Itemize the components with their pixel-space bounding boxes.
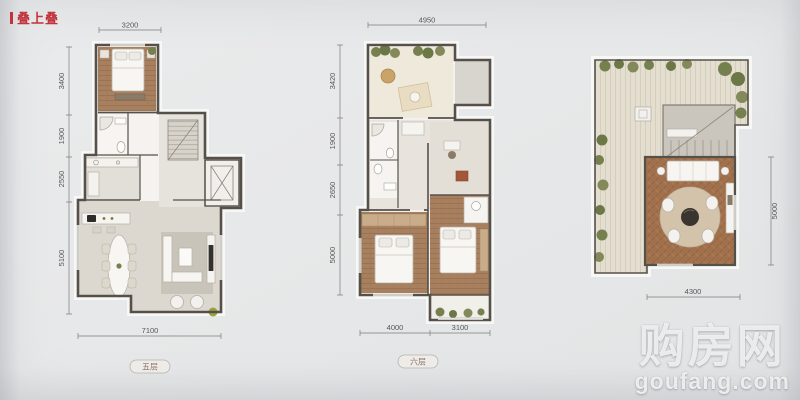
floor-plan-level5: 3200 3400 1900 2550 5100 7100 五层 — [55, 20, 305, 390]
plant-icon — [464, 309, 473, 318]
category-label: 叠上叠 — [10, 8, 59, 27]
dim-label: 1900 — [57, 128, 66, 145]
coffee-table-icon — [179, 248, 192, 266]
watermark-site-url: goufang.com — [635, 369, 790, 394]
wardrobe-icon — [480, 229, 488, 271]
elevator-icon — [205, 160, 239, 206]
sink-icon — [384, 183, 396, 190]
category-label-text: 叠上叠 — [17, 8, 59, 27]
round-table-icon — [681, 208, 699, 226]
stairs-icon — [168, 120, 198, 160]
floorplan-page: 叠上叠 — [0, 0, 800, 400]
chair-icon — [702, 229, 714, 243]
cabinet-icon — [456, 171, 468, 181]
lounge-chair-icon — [191, 296, 204, 309]
study-area — [430, 122, 488, 193]
side-table-icon — [657, 167, 665, 175]
dining-table-icon — [102, 235, 136, 297]
balcony — [431, 296, 489, 318]
dim-label: 4300 — [685, 287, 702, 296]
roof-room — [645, 157, 735, 265]
lounge-chair-icon — [171, 296, 184, 309]
label-marker-bar — [10, 12, 13, 24]
plant-icon — [477, 308, 484, 315]
floor-plan-roof: 5000 4300 — [575, 45, 800, 350]
dim-label: 4000 — [387, 323, 404, 332]
dim-label: 4950 — [419, 16, 436, 25]
sink-icon — [472, 202, 481, 211]
sofa-icon — [163, 236, 172, 282]
floor-tag-label: 六层 — [410, 357, 426, 367]
dim-label: 7100 — [142, 326, 159, 335]
dim-label: 2550 — [57, 171, 66, 188]
chair-icon — [706, 196, 718, 210]
dim-label: 3420 — [328, 73, 337, 90]
floor-tag-label: 五层 — [142, 363, 158, 372]
toilet-icon — [117, 142, 125, 153]
dim-label: 3100 — [452, 323, 469, 332]
tv-icon — [209, 245, 214, 271]
terrace-annex-floor — [455, 60, 490, 105]
floor-plan-level6: 4950 3420 1900 2650 5000 4000 3100 六层 — [318, 13, 533, 388]
floor-tag-5f: 五层 — [130, 360, 170, 373]
dim-label: 1900 — [328, 133, 337, 150]
toilet-icon — [386, 148, 393, 158]
chair-icon — [448, 151, 456, 159]
watermark: 购房网 goufang.com — [635, 323, 790, 394]
dim-label: 5100 — [57, 250, 66, 267]
closet-icon — [402, 122, 424, 135]
skylight-icon — [635, 107, 651, 121]
bathroom — [98, 115, 128, 155]
bedroom-2 — [430, 195, 490, 295]
chair-icon — [662, 198, 674, 212]
plant-icon — [436, 308, 445, 317]
plant-icon — [449, 310, 457, 318]
dim-label: 5000 — [328, 247, 337, 264]
desk-icon — [444, 141, 460, 150]
chair-icon — [668, 229, 680, 243]
cabinet-icon — [726, 183, 734, 233]
dim-label: 5000 — [770, 203, 779, 220]
dim-label: 3200 — [122, 21, 139, 30]
rattan-chair-icon — [381, 69, 395, 83]
floor-tag-6f: 六层 — [398, 355, 438, 368]
toilet-icon — [374, 164, 382, 174]
dim-label: 2650 — [328, 182, 337, 199]
watermark-site-name: 购房网 — [635, 323, 790, 369]
side-table-icon — [721, 167, 729, 175]
bedroom-1 — [360, 212, 428, 293]
dim-label: 3400 — [57, 73, 66, 90]
sink-icon — [115, 118, 126, 124]
plant-icon — [148, 47, 156, 55]
